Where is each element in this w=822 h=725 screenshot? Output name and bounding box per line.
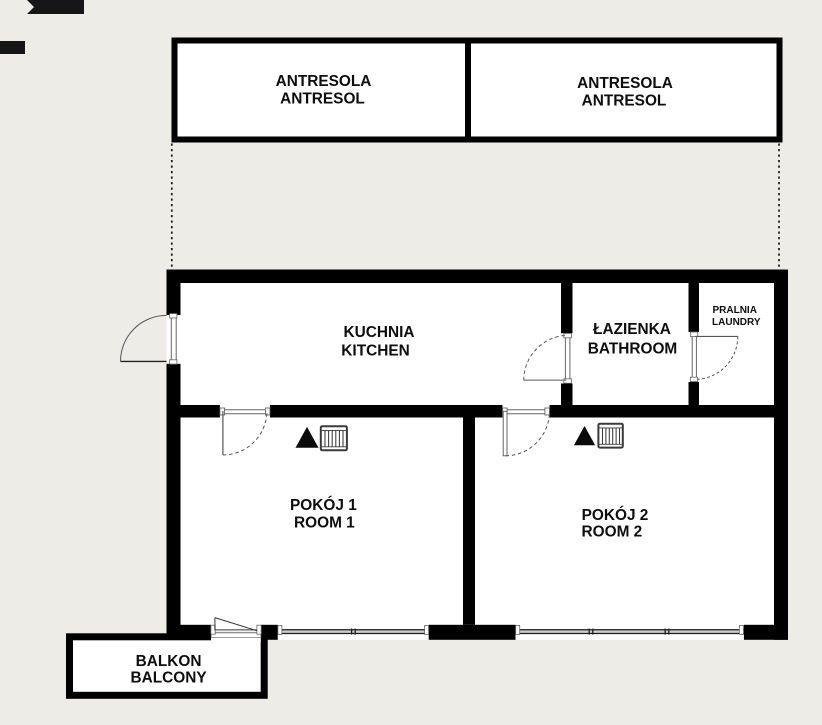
svg-text:ANTRESOL: ANTRESOL: [280, 91, 365, 108]
svg-text:ANTRESOLA: ANTRESOLA: [577, 75, 673, 92]
svg-text:ŁAZIENKA: ŁAZIENKA: [593, 321, 671, 338]
svg-text:KITCHEN: KITCHEN: [341, 343, 409, 360]
svg-text:POKÓJ 1: POKÓJ 1: [290, 496, 357, 514]
svg-text:BATHROOM: BATHROOM: [588, 340, 677, 357]
svg-text:ROOM 1: ROOM 1: [294, 514, 355, 531]
svg-text:LAUNDRY: LAUNDRY: [712, 317, 761, 328]
svg-text:BALKON: BALKON: [136, 653, 202, 670]
svg-text:BALCONY: BALCONY: [131, 669, 208, 686]
svg-text:POKÓJ 2: POKÓJ 2: [582, 506, 649, 524]
svg-text:ANTRESOLA: ANTRESOLA: [276, 73, 372, 90]
svg-text:KUCHNIA: KUCHNIA: [344, 324, 415, 341]
svg-text:PRALNIA: PRALNIA: [712, 305, 756, 316]
svg-text:ROOM 2: ROOM 2: [582, 524, 643, 541]
svg-text:ANTRESOL: ANTRESOL: [582, 93, 667, 110]
